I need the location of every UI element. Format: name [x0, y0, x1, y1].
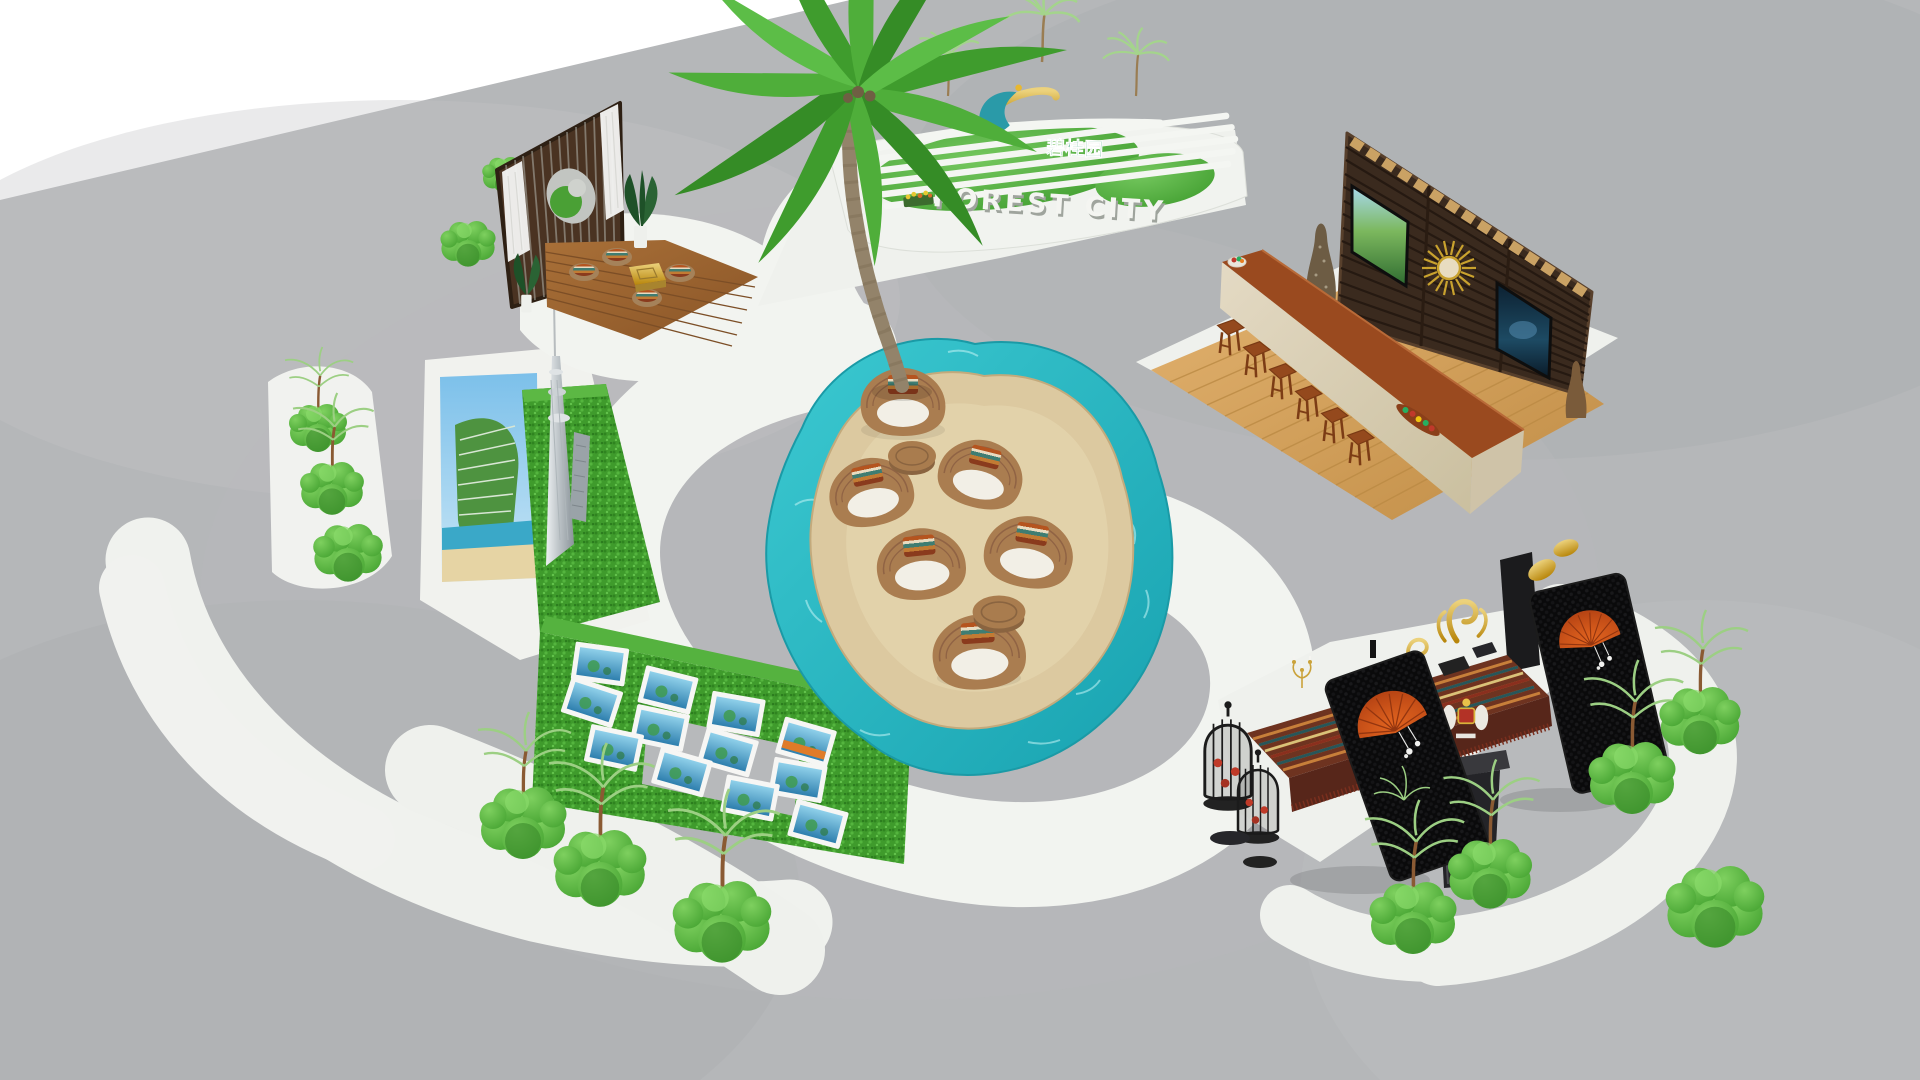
fruit-bowl — [1228, 257, 1246, 268]
rattan-side-table — [973, 596, 1026, 633]
tv-right-glow — [1509, 321, 1537, 339]
deck-pouf — [569, 263, 599, 281]
cage-base — [1243, 856, 1277, 868]
logo-text: 碧桂园 — [1045, 136, 1104, 161]
cutout-light — [568, 179, 586, 197]
booth-render-stage: 碧桂园 FOREST CITY FOREST CITY — [0, 0, 1920, 1080]
rattan-side-table — [888, 441, 936, 475]
booth-render: 碧桂园 FOREST CITY FOREST CITY — [0, 0, 1920, 1080]
deck-pouf — [665, 264, 695, 282]
poster-beach — [442, 544, 539, 582]
deck-pouf — [602, 248, 632, 266]
dark-bottle — [1370, 640, 1376, 658]
cage-base — [1210, 831, 1250, 845]
